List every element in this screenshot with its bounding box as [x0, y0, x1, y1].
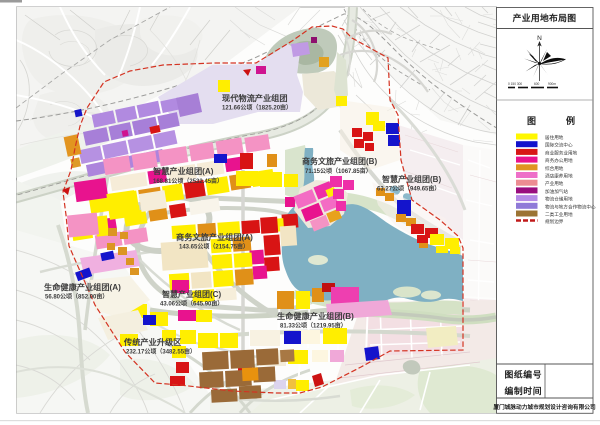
svg-text:121.66公顷（1825.20亩）: 121.66公顷（1825.20亩） [222, 104, 292, 112]
svg-text:二类工业用地: 二类工业用地 [545, 211, 573, 218]
svg-text:43.06公顷（645.90亩）: 43.06公顷（645.90亩） [160, 300, 223, 308]
svg-text:N: N [537, 35, 542, 42]
svg-text:国际交流中心: 国际交流中心 [545, 142, 573, 149]
svg-text:商业服务业用地: 商业服务业用地 [545, 149, 578, 156]
svg-text:600: 600 [534, 82, 540, 86]
svg-text:71.15公顷（1067.85亩）: 71.15公顷（1067.85亩） [305, 167, 372, 175]
svg-text:143.65公顷（2154.75亩）: 143.65公顷（2154.75亩） [179, 243, 249, 251]
svg-text:图: 图 [527, 116, 536, 126]
svg-text:生命健康产业组团(B): 生命健康产业组团(B) [277, 311, 354, 321]
svg-text:商务文旅产业组团(B): 商务文旅产业组团(B) [302, 156, 377, 166]
svg-text:168.81公顷（2532.45亩）: 168.81公顷（2532.45亩） [153, 177, 223, 185]
svg-text:56.80公顷（852.00亩）: 56.80公顷（852.00亩） [45, 293, 108, 301]
svg-text:商务办公用地: 商务办公用地 [545, 157, 573, 164]
svg-text:智慧产业组团(C): 智慧产业组团(C) [162, 289, 221, 299]
svg-text:物流与地方合作物流中心: 物流与地方合作物流中心 [545, 203, 596, 210]
svg-text:智慧产业组团(A): 智慧产业组团(A) [152, 166, 214, 176]
svg-text:编制时间: 编制时间 [505, 385, 543, 396]
svg-text:产业用地布局图: 产业用地布局图 [513, 12, 577, 23]
svg-text:图纸编号: 图纸编号 [505, 369, 543, 380]
svg-text:商务文旅产业组团(A): 商务文旅产业组团(A) [176, 232, 253, 242]
svg-text:智慧产业组团(B): 智慧产业组团(B) [382, 174, 441, 184]
svg-text:232.17公顷（3482.55亩）: 232.17公顷（3482.55亩） [126, 348, 196, 356]
svg-text:900m: 900m [548, 82, 556, 86]
svg-text:产业用地: 产业用地 [545, 180, 564, 187]
svg-text:81.33公顷（1219.95亩）: 81.33公顷（1219.95亩） [280, 322, 347, 330]
svg-text:现代物流产业组团: 现代物流产业组团 [222, 93, 288, 103]
svg-text:加油加气站: 加油加气站 [545, 188, 568, 195]
svg-text:厦门城脉动力城市规划设计咨询有限公司: 厦门城脉动力城市规划设计咨询有限公司 [493, 403, 596, 411]
svg-text:生命健康产业组团(A): 生命健康产业组团(A) [44, 282, 121, 292]
svg-text:63.27公顷（949.65亩）: 63.27公顷（949.65亩） [377, 185, 440, 193]
svg-text:综合用地: 综合用地 [545, 165, 564, 172]
svg-text:居住用地: 居住用地 [545, 134, 564, 141]
svg-text:0 150 300: 0 150 300 [508, 82, 522, 86]
svg-text:酒店康养用地: 酒店康养用地 [545, 173, 573, 180]
svg-text:例: 例 [566, 115, 575, 126]
svg-text:物流仓储用地: 物流仓储用地 [545, 196, 573, 203]
svg-text:规划边界: 规划边界 [545, 218, 564, 225]
svg-text:传统产业升级区: 传统产业升级区 [123, 337, 181, 347]
